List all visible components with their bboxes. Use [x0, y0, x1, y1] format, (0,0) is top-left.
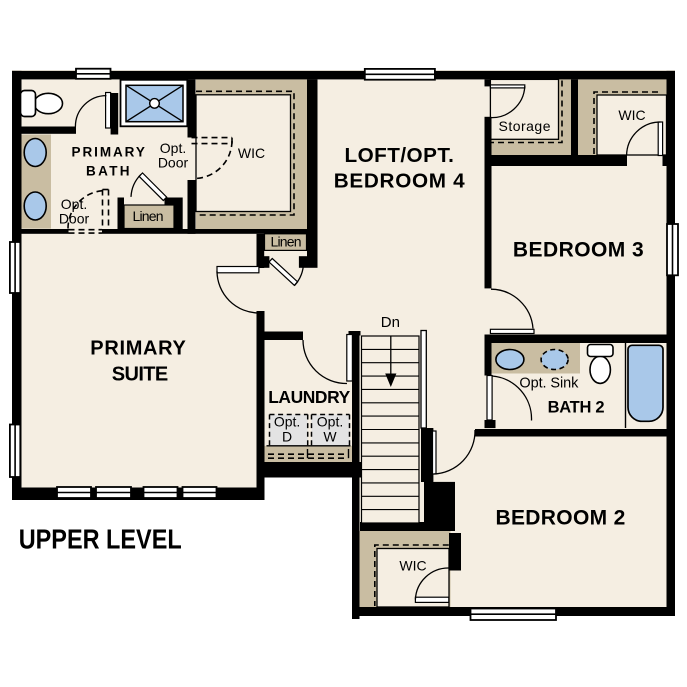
- svg-text:LOFT/OPT.: LOFT/OPT.: [345, 144, 454, 167]
- svg-text:UPPER LEVEL: UPPER LEVEL: [19, 524, 182, 555]
- svg-text:BEDROOM 2: BEDROOM 2: [495, 507, 625, 530]
- svg-text:SUITE: SUITE: [112, 363, 169, 385]
- svg-text:BEDROOM 4: BEDROOM 4: [334, 170, 465, 193]
- svg-text:Door: Door: [158, 154, 189, 170]
- svg-text:PRIMARY: PRIMARY: [90, 337, 186, 359]
- svg-text:W: W: [323, 429, 337, 445]
- svg-text:Door: Door: [59, 210, 90, 226]
- svg-text:PRIMARY: PRIMARY: [72, 144, 145, 159]
- svg-text:LAUNDRY: LAUNDRY: [268, 387, 350, 407]
- svg-text:Opt.: Opt.: [274, 414, 300, 430]
- svg-text:WIC: WIC: [618, 107, 645, 123]
- svg-text:Dn: Dn: [381, 314, 400, 331]
- svg-text:BEDROOM 3: BEDROOM 3: [513, 238, 644, 261]
- svg-text:Storage: Storage: [499, 118, 551, 134]
- svg-text:Linen: Linen: [271, 234, 302, 250]
- svg-text:BATH 2: BATH 2: [548, 399, 605, 417]
- svg-text:Opt. Sink: Opt. Sink: [519, 375, 579, 391]
- svg-text:Linen: Linen: [133, 208, 164, 224]
- svg-text:Opt.: Opt.: [317, 414, 343, 430]
- svg-text:WIC: WIC: [399, 558, 426, 574]
- svg-text:D: D: [282, 429, 292, 445]
- svg-text:WIC: WIC: [238, 145, 265, 161]
